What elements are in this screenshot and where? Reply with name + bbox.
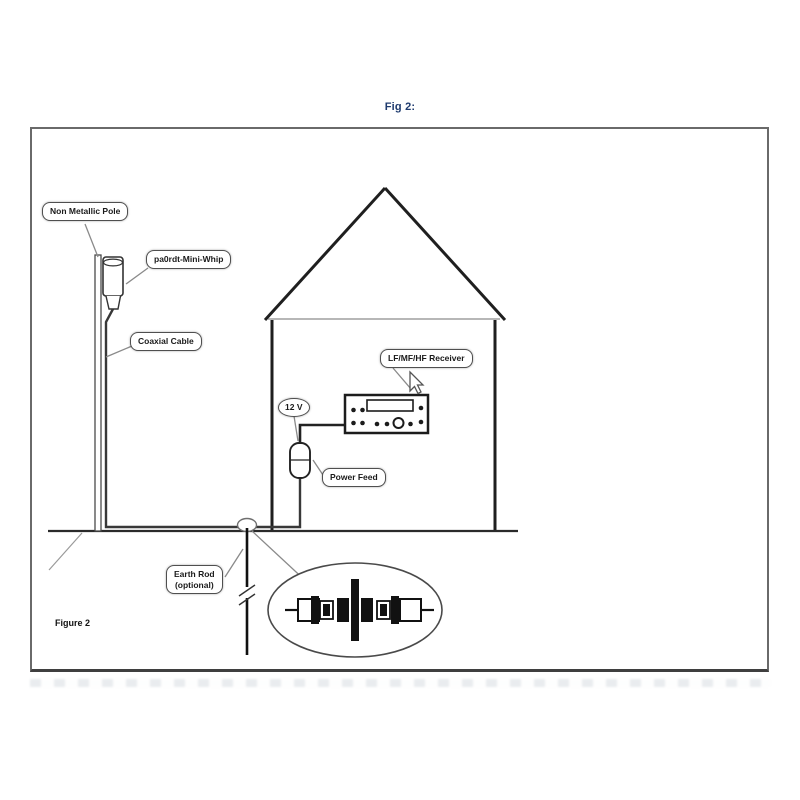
label-receiver: LF/MF/HF Receiver [380, 349, 473, 368]
label-text: Non Metallic Pole [50, 206, 120, 216]
earth-rod [239, 528, 255, 655]
connector-detail-ellipse [268, 563, 442, 657]
label-non-metallic-pole: Non Metallic Pole [42, 202, 128, 221]
label-text: pa0rdt-Mini-Whip [154, 254, 223, 264]
receiver-unit [345, 395, 428, 433]
label-voltage: 12 V [278, 398, 310, 417]
figure-page: Fig 2: [0, 0, 800, 800]
label-mini-whip: pa0rdt-Mini-Whip [146, 250, 231, 269]
antenna-installation-diagram [32, 129, 768, 669]
power-feed-to-receiver-cable [300, 425, 345, 443]
non-metallic-pole [95, 255, 101, 531]
label-text: Power Feed [330, 472, 378, 482]
mouse-cursor-icon [410, 372, 423, 394]
label-power-feed: Power Feed [322, 468, 386, 487]
page-title: Fig 2: [30, 101, 770, 113]
label-coaxial-cable: Coaxial Cable [130, 332, 202, 351]
ground-hatch-line [49, 533, 82, 570]
label-earth-rod: Earth Rod (optional) [166, 565, 223, 594]
label-text: Coaxial Cable [138, 336, 194, 346]
label-text: LF/MF/HF Receiver [388, 353, 465, 363]
label-text: 12 V [285, 402, 303, 412]
label-text-line1: Earth Rod [174, 569, 215, 580]
power-feed-unit [290, 443, 310, 478]
mini-whip-antenna [103, 257, 123, 309]
label-text-line2: (optional) [174, 580, 215, 591]
figure-caption: Figure 2 [55, 618, 90, 628]
cropped-caption-line [30, 679, 770, 687]
